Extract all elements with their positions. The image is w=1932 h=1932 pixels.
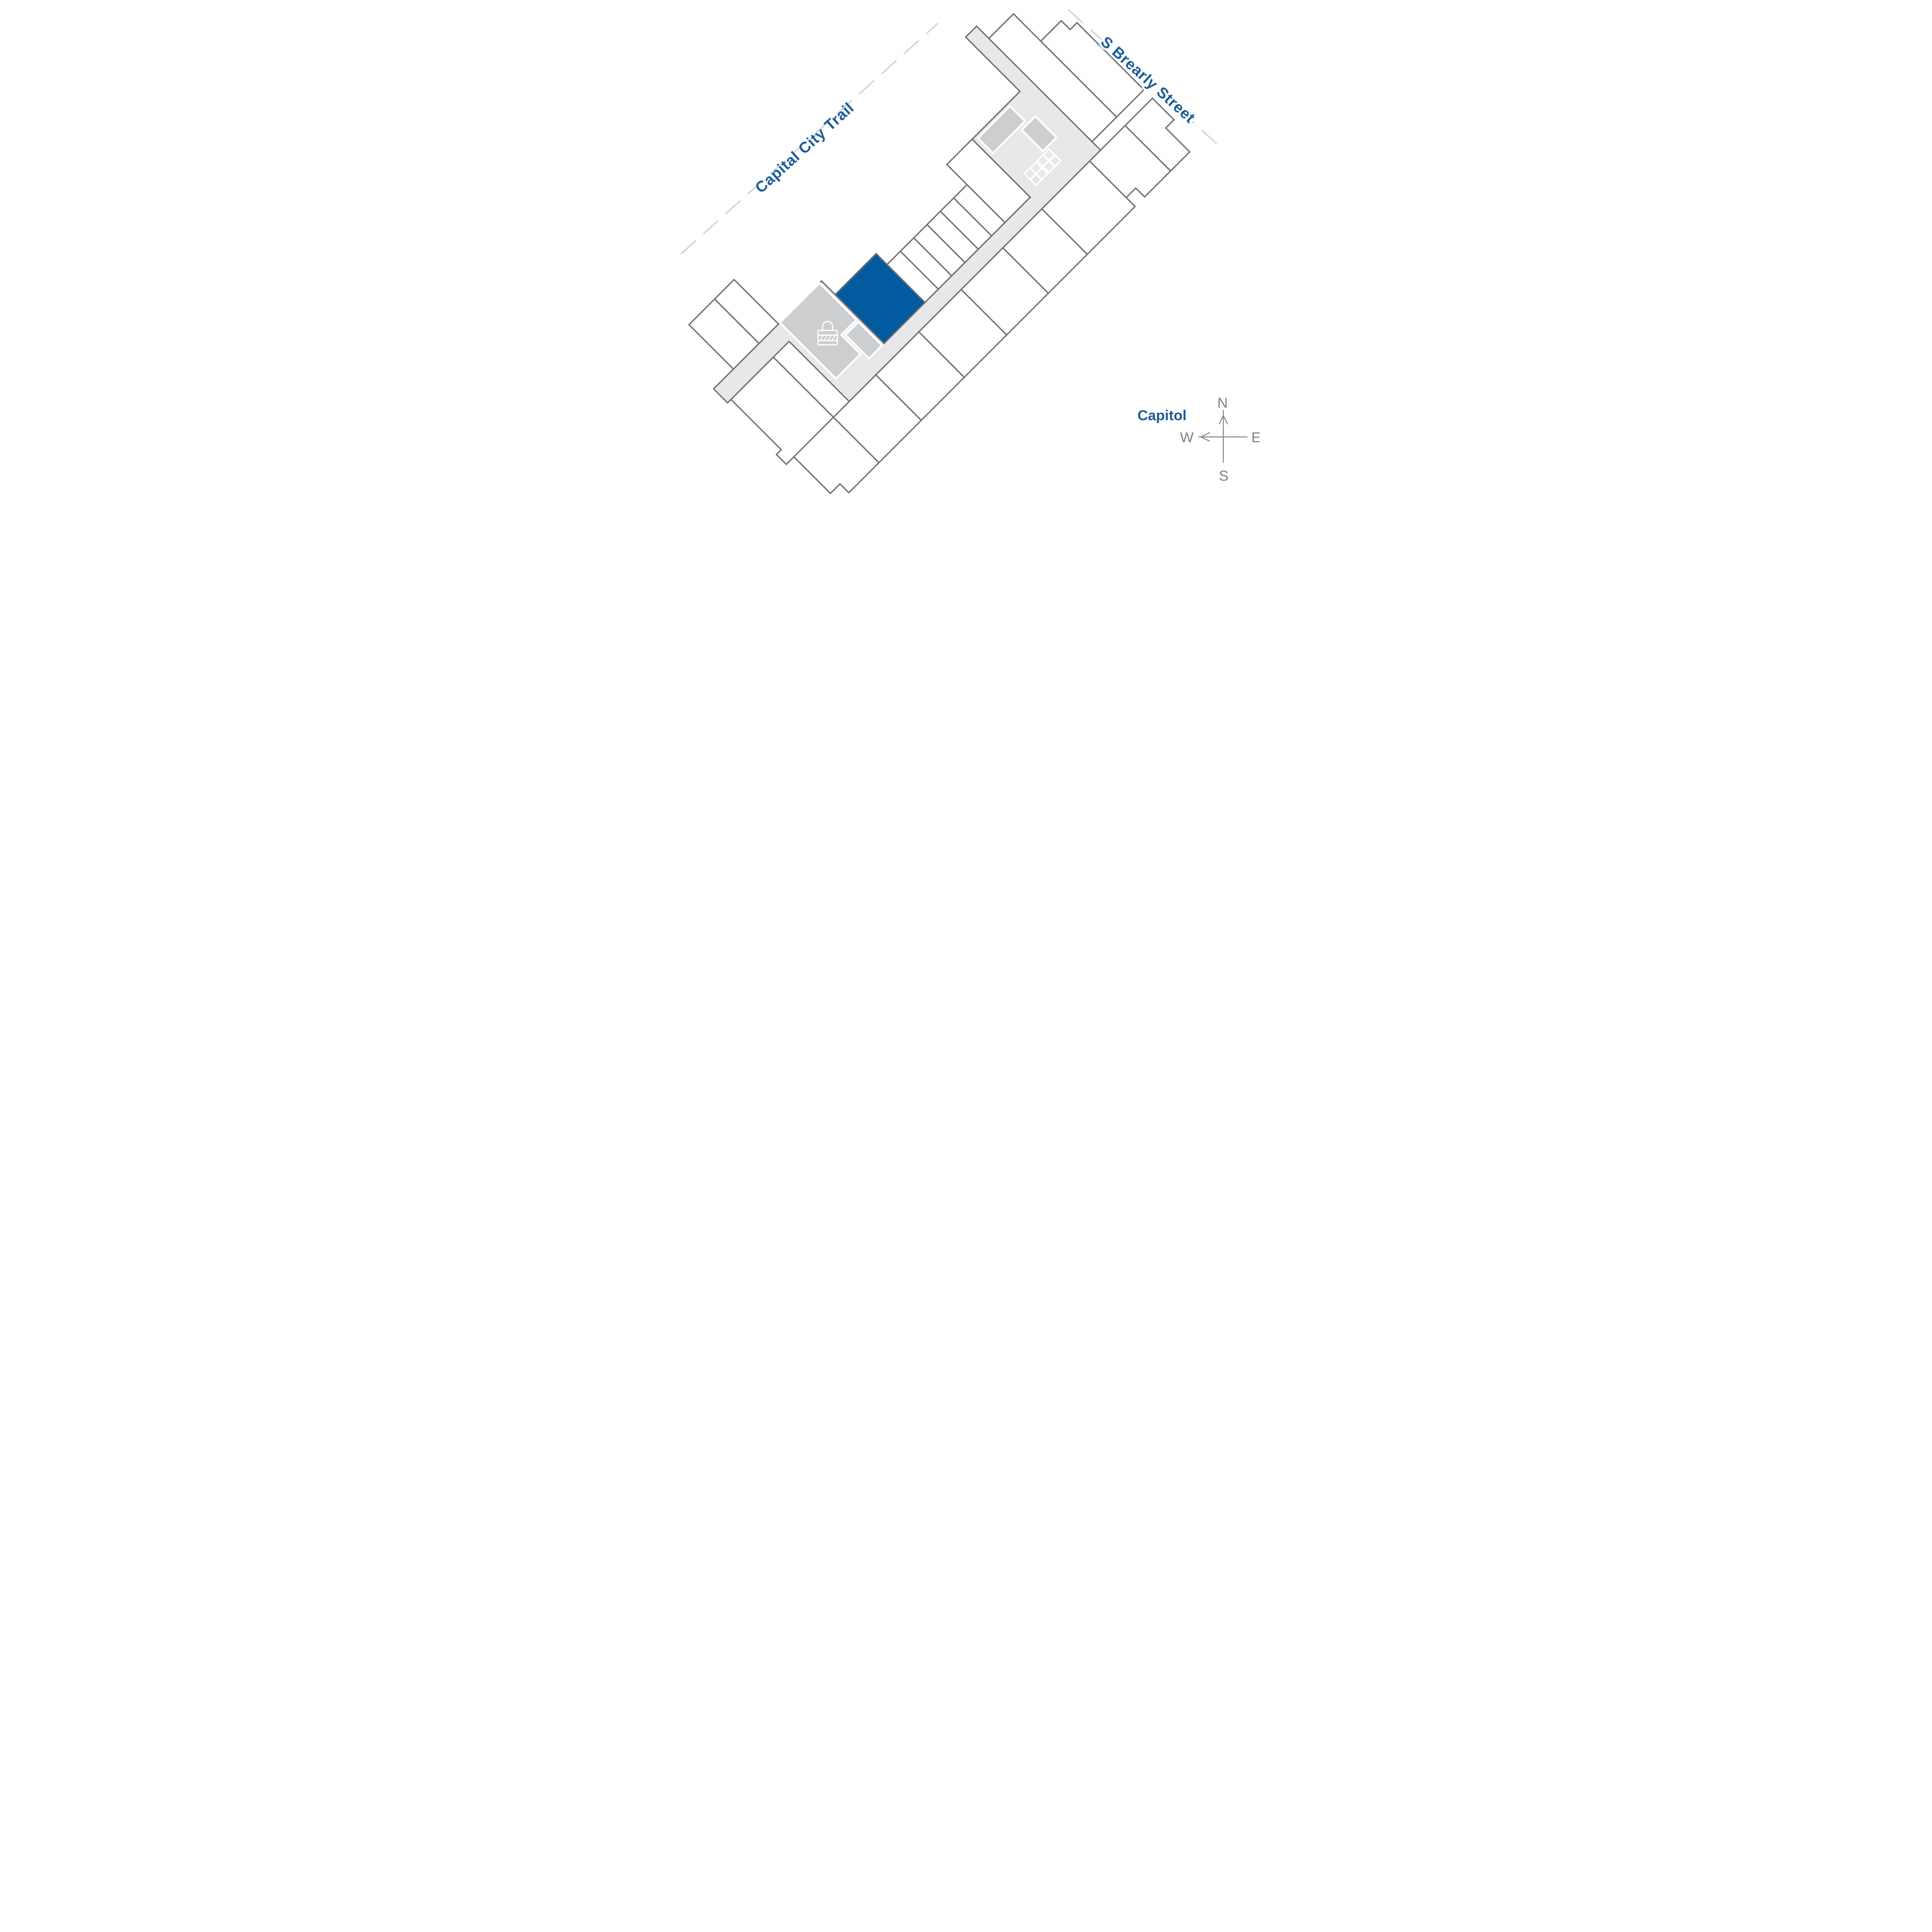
trail-label: Capital City Trail xyxy=(752,99,857,197)
site-plan-page: Capital City Trail S Brearly Street Capi… xyxy=(673,0,1260,503)
north-arrow-icon xyxy=(1219,410,1228,463)
compass-east-label: E xyxy=(1251,429,1260,446)
building-plan xyxy=(673,0,1198,503)
compass-west-label: W xyxy=(1180,429,1194,446)
compass-south-label: S xyxy=(1219,468,1228,484)
capitol-label: Capitol xyxy=(1137,407,1186,423)
compass: N S W E xyxy=(1180,395,1259,484)
site-plan-map: Capital City Trail S Brearly Street Capi… xyxy=(673,0,1260,503)
compass-north-label: N xyxy=(1217,395,1228,411)
